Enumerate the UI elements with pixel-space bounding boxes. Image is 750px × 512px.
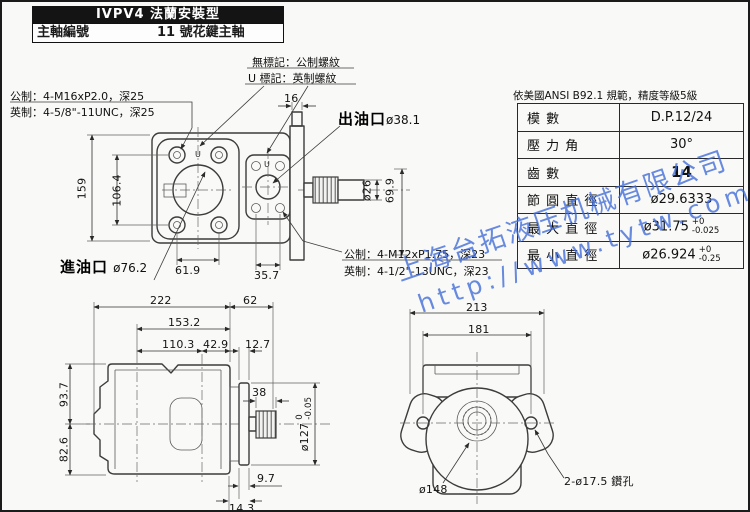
rear-view-drawing: [397, 309, 564, 504]
spec-value: 14: [620, 159, 744, 187]
inlet-port-label: 進油口 ø76.2: [60, 256, 147, 277]
dim-127: ø127: [298, 423, 311, 452]
note-top-imperial: 英制：4-5/8"-11UNC，深25: [10, 104, 155, 120]
table-row: 齒 數 14: [518, 159, 744, 187]
tolerance-lower: -0.025: [692, 227, 719, 236]
spec-table-caption: 依美國ANSI B92.1 規範，精度等級5級: [513, 88, 697, 103]
dim-82-6: 82.6: [58, 435, 71, 465]
dim-153-2: 153.2: [168, 316, 201, 329]
table-row: 模 數 D.P.12/24: [518, 104, 744, 132]
spec-value-number: ø31.75: [644, 220, 689, 235]
spec-value: ø31.75+0-0.025: [620, 214, 744, 242]
dim-106-4: 106.4: [111, 171, 124, 211]
dim-127-tol-bot: -0.05: [305, 397, 314, 420]
dim-38: 38: [252, 386, 266, 399]
dim-110-3: 110.3: [162, 338, 195, 351]
outlet-port-label: 出油口ø38.1: [338, 108, 420, 129]
spec-value: ø26.924+0-0.25: [620, 241, 744, 269]
spline-spec-table: 模 數 D.P.12/24 壓 力 角 30° 齒 數 14 節 圓 直 徑 ø…: [517, 103, 744, 269]
table-row: 最 大 直 徑 ø31.75+0-0.025: [518, 214, 744, 242]
spec-value: 30°: [620, 131, 744, 159]
dim-127-tol: ø1270-0.05: [296, 389, 314, 459]
spec-label: 節 圓 直 徑: [518, 186, 620, 214]
title-spindle-row: 主軸編號 11 號花鍵主軸: [32, 23, 284, 43]
inlet-port-name: 進油口: [60, 258, 108, 276]
spec-label: 齒 數: [518, 159, 620, 187]
outlet-port-name: 出油口: [338, 110, 386, 128]
dim-213: 213: [466, 301, 488, 314]
dim-9-7: 9.7: [257, 472, 275, 485]
u-thread-mark-1: U: [195, 150, 201, 159]
spec-label: 壓 力 角: [518, 131, 620, 159]
u-thread-mark-2: U: [264, 160, 270, 169]
spec-label: 模 數: [518, 104, 620, 132]
dim-26: ø26: [361, 177, 374, 205]
drill-hole-note: 2-ø17.5 鑽孔: [564, 473, 634, 489]
dim-148: ø148: [419, 483, 448, 496]
catalog-page: .ol{fill:none;stroke:#3c3c3c;stroke-widt…: [0, 0, 750, 512]
spec-value: D.P.12/24: [620, 104, 744, 132]
dim-62: 62: [243, 294, 257, 307]
note-u-mark: U 標記：英制螺紋: [248, 70, 337, 86]
dim-14-3: 14.3: [229, 502, 254, 512]
dim-69-9: 69.9: [384, 175, 397, 207]
dim-35-7: 35.7: [254, 269, 279, 282]
note-bottom-metric: 公制：4-M12xP1.75，深23: [344, 246, 485, 262]
title-model-banner: IVPV4 法蘭安裝型: [32, 6, 284, 23]
table-row: 最 小 直 徑 ø26.924+0-0.25: [518, 241, 744, 269]
note-no-mark: 無標記：公制螺紋: [252, 54, 340, 70]
inlet-port-diameter: ø76.2: [113, 261, 147, 275]
note-top-metric: 公制：4-M16xP2.0，深25: [10, 88, 144, 104]
spec-value-number: ø26.924: [642, 247, 695, 262]
spec-label: 最 小 直 徑: [518, 241, 620, 269]
table-row: 節 圓 直 徑 ø29.6333: [518, 186, 744, 214]
dim-42-9: 42.9: [203, 338, 228, 351]
dim-181: 181: [468, 323, 490, 336]
tolerance-lower: -0.25: [699, 255, 721, 264]
outlet-port-diameter: ø38.1: [386, 113, 420, 127]
spindle-value: 11 號花鍵主軸: [157, 24, 245, 41]
dim-93-7: 93.7: [58, 380, 71, 410]
side-view-drawing: [65, 302, 332, 510]
dim-222: 222: [150, 294, 172, 307]
spec-value: ø29.6333: [620, 186, 744, 214]
spindle-label: 主軸編號: [37, 24, 89, 41]
dim-159: 159: [76, 177, 89, 201]
table-row: 壓 力 角 30°: [518, 131, 744, 159]
note-bottom-imperial: 英制：4-1/2"-13UNC，深23: [344, 263, 489, 279]
dim-61-9: 61.9: [175, 264, 200, 277]
dim-16: 16: [284, 92, 298, 105]
spec-label: 最 大 直 徑: [518, 214, 620, 242]
dim-12-7: 12.7: [245, 338, 270, 351]
